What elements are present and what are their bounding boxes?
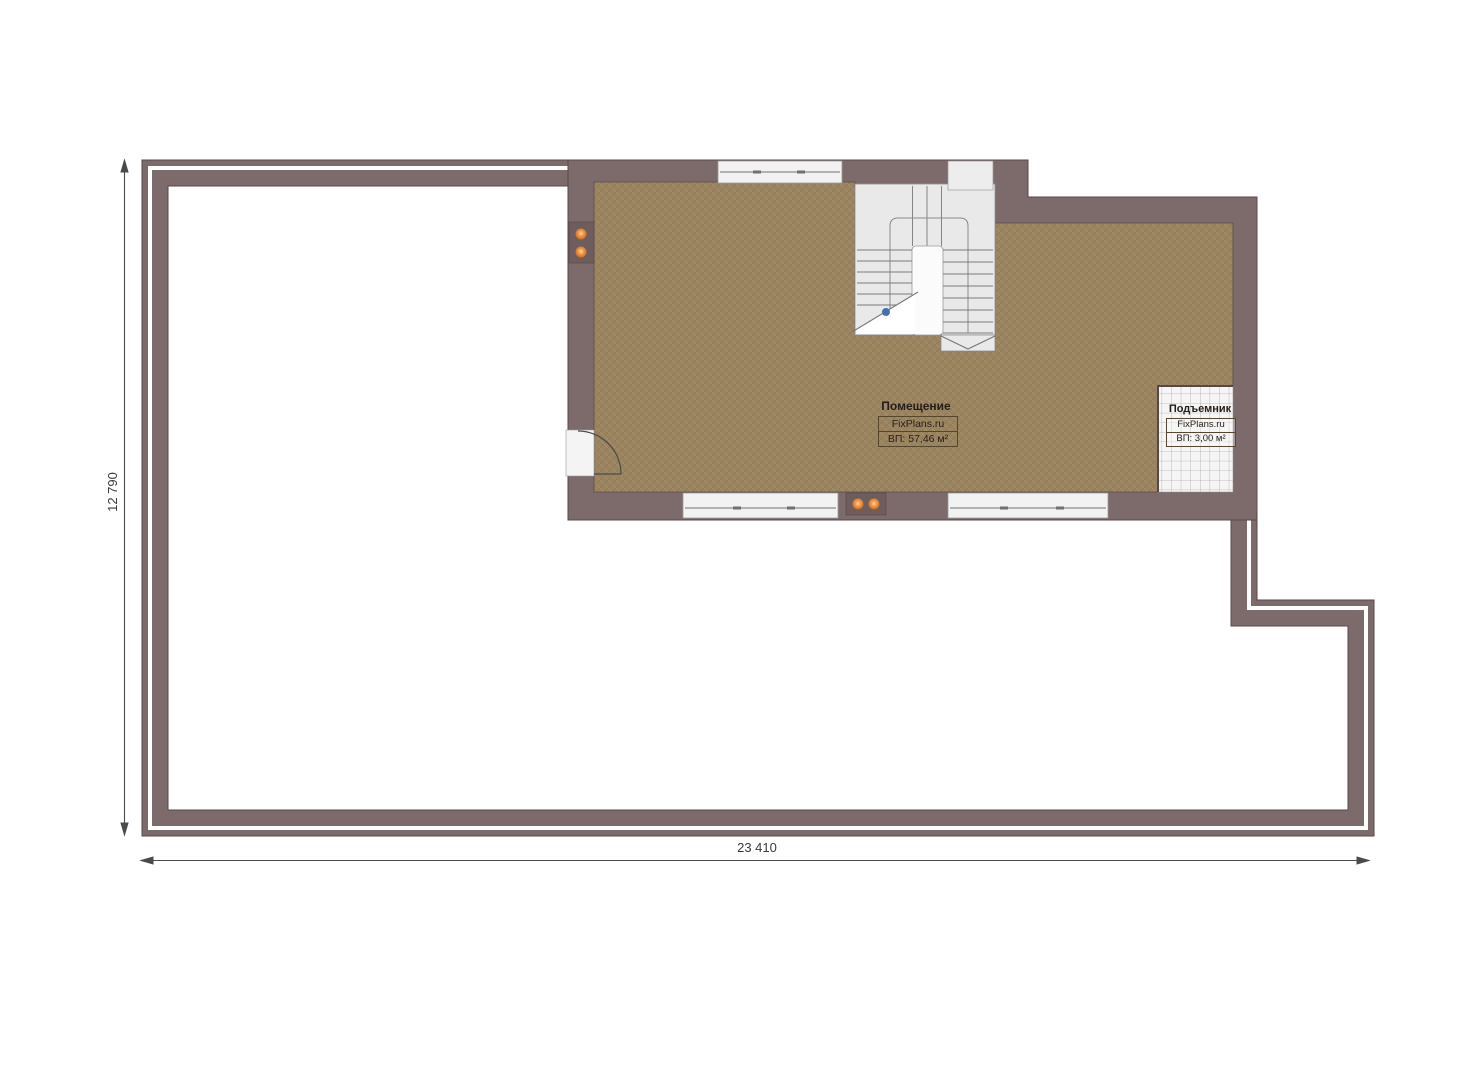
stair-void bbox=[912, 246, 943, 335]
elevator-area: ВП: 3,00 м² bbox=[1167, 432, 1235, 446]
staircase bbox=[852, 184, 995, 351]
dimension-width-label: 23 410 bbox=[697, 841, 817, 856]
elevator-info-box: FixPlans.ru ВП: 3,00 м² bbox=[1166, 418, 1236, 447]
dimension-arrow-left bbox=[141, 857, 153, 864]
floor-plan-drawing bbox=[0, 0, 1474, 1080]
dimension-arrow-right bbox=[1357, 857, 1369, 864]
room-area: ВП: 57,46 м² bbox=[879, 431, 957, 446]
dimension-height-label: 12 790 bbox=[106, 450, 122, 534]
outlets-left-wall bbox=[569, 222, 594, 263]
outlet-icon bbox=[869, 499, 880, 510]
dimension-arrow-up bbox=[121, 160, 128, 172]
outlet-icon bbox=[853, 499, 864, 510]
room-brand: FixPlans.ru bbox=[879, 417, 957, 431]
building bbox=[566, 160, 1257, 520]
dimension-height bbox=[121, 160, 128, 835]
dimension-width bbox=[141, 857, 1369, 864]
elevator-title: Подъемник bbox=[1160, 403, 1240, 416]
room-info-box: FixPlans.ru ВП: 57,46 м² bbox=[878, 416, 958, 447]
stair-top-opening bbox=[948, 161, 993, 190]
window-bottom-left bbox=[683, 493, 838, 518]
outlet-icon bbox=[576, 229, 587, 240]
outlet-icon bbox=[576, 247, 587, 258]
elevator-brand: FixPlans.ru bbox=[1167, 419, 1235, 432]
outlets-bottom-wall bbox=[846, 493, 886, 515]
room-title: Помещение bbox=[858, 400, 974, 414]
stair-marker-dot bbox=[882, 308, 890, 316]
floor-plan-canvas: Помещение FixPlans.ru ВП: 57,46 м² Подъе… bbox=[0, 0, 1474, 1080]
window-top bbox=[718, 161, 842, 183]
window-bottom-right bbox=[948, 493, 1108, 518]
dimension-arrow-down bbox=[121, 823, 128, 835]
